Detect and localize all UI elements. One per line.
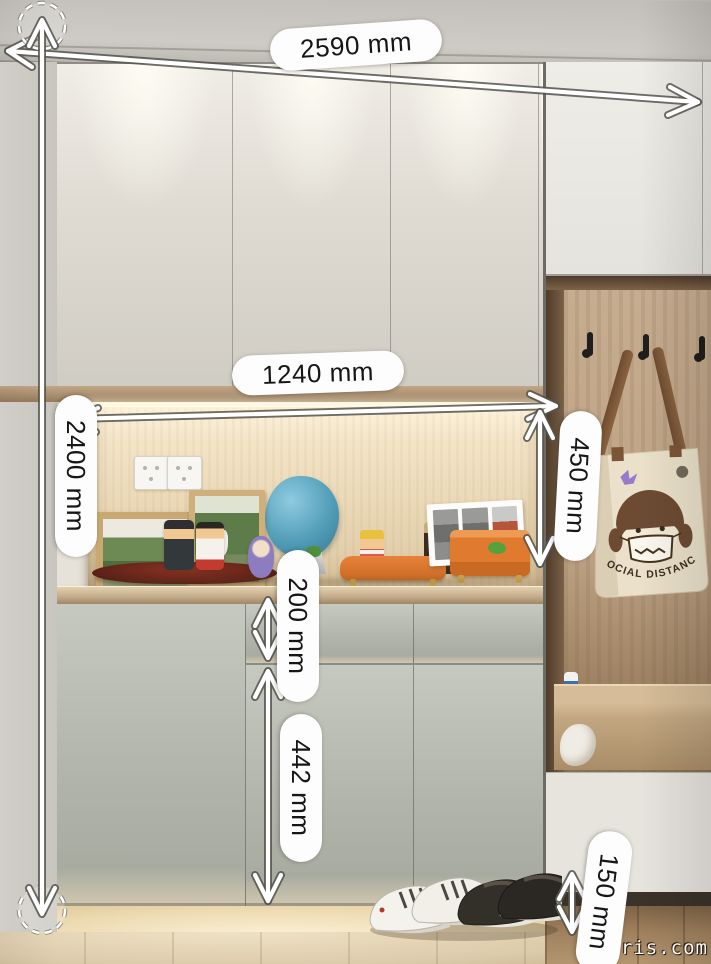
coat-hook-icon xyxy=(699,336,705,360)
orange-box xyxy=(450,530,530,576)
dim-label-door: 442 mm xyxy=(280,714,322,862)
lower-door xyxy=(57,604,245,906)
annotated-cabinet-photo: SOCIAL DISTANCE xyxy=(0,0,711,964)
dim-label-niche-height: 450 mm xyxy=(553,410,603,562)
upper-door xyxy=(390,64,539,390)
upper-door xyxy=(57,64,232,390)
shadow-gap xyxy=(546,892,711,906)
figurine-groom xyxy=(164,520,194,570)
right-upper-cabinet xyxy=(546,62,711,276)
blue-art-piece xyxy=(265,476,339,558)
led-strip xyxy=(88,402,543,407)
printed-mask xyxy=(628,535,673,563)
upper-door xyxy=(232,64,391,390)
sneakers xyxy=(366,858,562,944)
strap-stub xyxy=(611,447,623,461)
coat-nook-frame xyxy=(546,276,711,290)
dim-label-drawer: 200 mm xyxy=(277,550,319,702)
drawer-front xyxy=(413,604,546,665)
dim-label-niche-width: 1240 mm xyxy=(231,350,404,396)
power-outlet xyxy=(134,456,169,490)
figurine-purple xyxy=(248,536,274,578)
strap-stub xyxy=(669,445,681,457)
tote-bag: SOCIAL DISTANCE xyxy=(585,444,711,600)
coat-hook-icon xyxy=(587,332,593,356)
cabinet-side-panel xyxy=(0,62,58,934)
power-outlet xyxy=(167,456,202,490)
figurine-bride xyxy=(196,522,224,570)
coat-hook-icon xyxy=(643,334,649,358)
dim-label-total-height: 2400 mm xyxy=(55,395,97,557)
drawer-front xyxy=(245,604,414,665)
upper-cabinet xyxy=(57,62,545,390)
